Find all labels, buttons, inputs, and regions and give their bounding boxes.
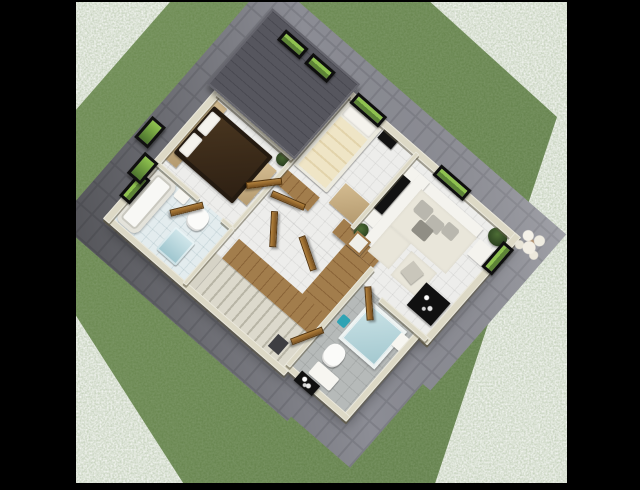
floor-plan-render (0, 0, 640, 490)
letterbox-top (0, 0, 640, 2)
letterbox-left (0, 0, 76, 490)
letterbox-bottom (0, 483, 640, 490)
letterbox-right (567, 0, 640, 490)
